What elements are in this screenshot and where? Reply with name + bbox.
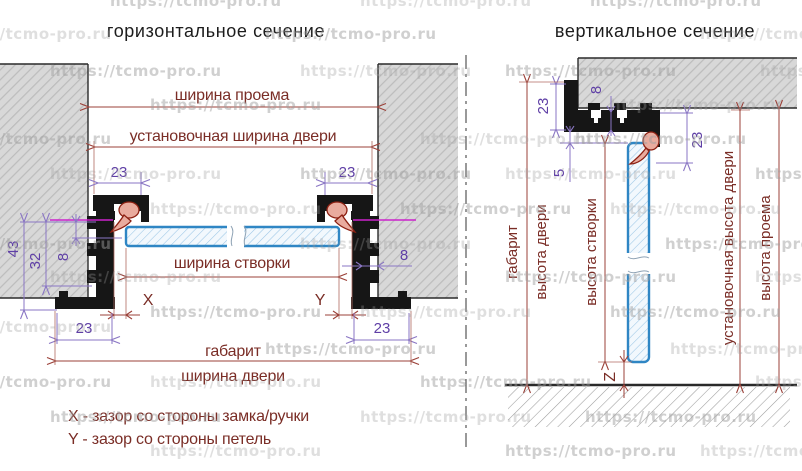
dim-door-height: высота двери [533, 204, 550, 299]
dim-32: 32 [27, 253, 44, 270]
plan-right-wall [378, 64, 458, 298]
dim-gap-y: Y [315, 292, 326, 309]
dim-gap-x: X [143, 292, 154, 309]
dim-v-top-23: 23 [535, 98, 552, 115]
plan-door-sash [126, 221, 339, 251]
technical-drawing: горизонтальное сечение вертикальное сече… [0, 0, 802, 471]
dim-overall-width: габарит [205, 343, 262, 360]
dim-gap-z: Z [602, 372, 619, 382]
plan-left-wall [0, 64, 88, 298]
dim-top-right-23: 23 [339, 164, 356, 181]
legend-y-note: Y - зазор со стороны петель [68, 431, 271, 448]
dim-install-width: установочная ширина двери [130, 128, 337, 145]
section-door-sash [621, 143, 656, 362]
section-floor [505, 385, 797, 427]
dim-opening-width: ширина проема [175, 87, 290, 104]
dim-bottom-left-23: 23 [76, 320, 93, 337]
sash-break [227, 221, 244, 251]
dim-install-height: установочная высота двери [720, 151, 737, 345]
sash-break [621, 253, 656, 274]
dim-overall-height: габарит [504, 225, 521, 279]
dim-v-right-23: 23 [689, 132, 706, 149]
dim-sash-width: ширина створки [174, 255, 290, 272]
dim-top-left-23: 23 [111, 164, 128, 181]
dim-8-right: 8 [400, 247, 408, 264]
dim-43: 43 [5, 241, 22, 258]
dim-door-width: ширина двери [181, 368, 285, 385]
dim-opening-height: высота проема [757, 195, 774, 301]
dim-v-gap-5: 5 [551, 169, 568, 177]
horizontal-section-title: горизонтальное сечение [107, 21, 325, 41]
dim-bottom-right-23: 23 [374, 320, 391, 337]
vertical-section-title: вертикальное сечение [555, 21, 755, 41]
legend-x-note: X - зазор со стороны замка/ручки [68, 408, 309, 425]
dim-8-left: 8 [55, 253, 72, 261]
dim-sash-height: высота створки [583, 198, 600, 305]
drawing-canvas: горизонтальное сечение вертикальное сече… [0, 0, 802, 471]
dim-v-wall-8: 8 [588, 86, 605, 94]
